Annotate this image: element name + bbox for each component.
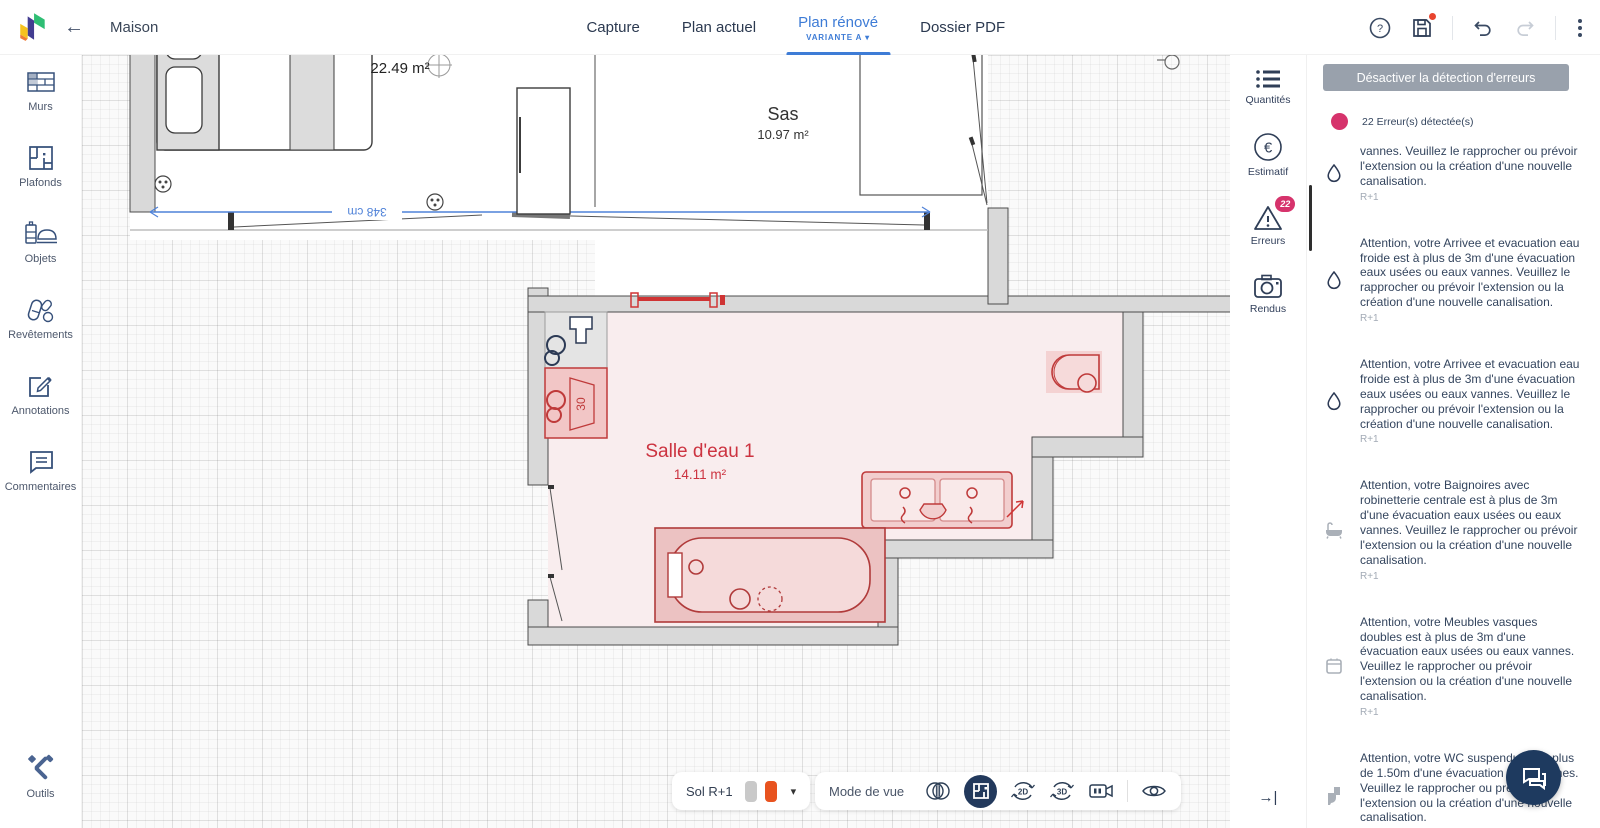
top-bar: ← Maison Capture Plan actuel Plan rénové… (0, 0, 1600, 55)
view-mode-label: Mode de vue (829, 784, 904, 799)
eye-visibility-icon[interactable] (1141, 778, 1167, 804)
divider (1555, 16, 1556, 40)
floor-selector-label: Sol R+1 (686, 784, 733, 799)
chevron-down-icon: ▾ (865, 33, 870, 42)
wall-bricks-icon (26, 68, 56, 96)
wc-suspendu[interactable] (1046, 351, 1102, 393)
water-drop-icon (1323, 391, 1345, 411)
unsaved-indicator (1429, 13, 1436, 20)
euro-icon: € (1253, 132, 1283, 162)
plan-2d-view-button[interactable] (964, 775, 997, 808)
tab-dossier-pdf[interactable]: Dossier PDF (920, 0, 1005, 55)
save-icon[interactable] (1410, 16, 1434, 40)
svg-text:348 cm: 348 cm (347, 205, 386, 219)
sidebar-item-objets[interactable]: Objets (24, 220, 58, 265)
bed-furniture-icon (24, 220, 58, 248)
chat-button[interactable] (1506, 750, 1561, 805)
error-item[interactable]: Attention, votre Baignoires avec robinet… (1323, 478, 1590, 581)
vanity-cabinet-icon (1323, 657, 1345, 675)
error-item[interactable]: Attention, votre Arrivee et evacuation e… (1323, 236, 1590, 324)
svg-text:2D: 2D (1018, 788, 1028, 797)
video-camera-icon[interactable] (1088, 778, 1114, 804)
double-vanity[interactable] (862, 472, 1023, 528)
wardrobe[interactable] (517, 88, 570, 214)
overlay-compare-icon[interactable] (925, 778, 951, 804)
chevron-down-icon: ▾ (791, 785, 797, 798)
back-arrow-icon[interactable]: ← (64, 16, 84, 39)
svg-text:30: 30 (574, 397, 588, 411)
redo-icon[interactable] (1513, 16, 1537, 40)
tab-plan-renove[interactable]: Plan rénové VARIANTE A▾ (798, 0, 878, 55)
left-toolbar: Murs Plafonds Objets Revêtements (0, 55, 82, 828)
sidebar-item-murs[interactable]: Murs (26, 68, 56, 113)
sidebar-item-outils[interactable]: Outils (26, 753, 56, 800)
disable-error-detection-button[interactable]: Désactiver la détection d'erreurs (1323, 64, 1569, 91)
sidebar-item-revetements[interactable]: Revêtements (8, 296, 73, 341)
svg-text:?: ? (1377, 23, 1383, 35)
chat-bubbles-icon (1520, 765, 1548, 791)
svg-text:3D: 3D (1057, 788, 1067, 797)
variant-selector[interactable]: VARIANTE A▾ (806, 33, 870, 42)
comment-bubble-icon (26, 448, 56, 476)
error-list: vannes. Veuillez le rapprocher ou prévoi… (1307, 144, 1600, 828)
sidebar-item-plafonds[interactable]: Plafonds (19, 144, 62, 189)
washing-machine[interactable]: 30 (545, 368, 607, 438)
help-icon[interactable]: ? (1368, 16, 1392, 40)
undo-icon[interactable] (1471, 16, 1495, 40)
svg-text:14.11 m²: 14.11 m² (674, 467, 727, 482)
svg-text:€: € (1264, 140, 1273, 157)
svg-text:10.97 m²: 10.97 m² (757, 127, 809, 142)
floorplan-icon (27, 144, 55, 172)
divider (1127, 780, 1128, 802)
rail-item-estimatif[interactable]: € Estimatif (1248, 132, 1288, 178)
floor-chip-gray[interactable] (745, 781, 757, 802)
list-icon (1255, 68, 1281, 90)
plan-canvas[interactable]: 348 cm 22.49 m² (82, 55, 1230, 828)
camera-icon (1253, 273, 1283, 299)
rotate-3d-icon[interactable]: 3D (1049, 778, 1075, 804)
error-count-badge: 22 (1275, 196, 1295, 212)
tab-capture[interactable]: Capture (586, 0, 639, 55)
errors-panel: Désactiver la détection d'erreurs 22 Err… (1306, 55, 1600, 828)
svg-text:Salle d'eau 1: Salle d'eau 1 (645, 441, 754, 462)
app-logo-icon (16, 10, 50, 44)
project-title: Maison (110, 19, 158, 36)
annotate-pencil-icon (26, 372, 54, 400)
error-item[interactable]: vannes. Veuillez le rapprocher ou prévoi… (1323, 144, 1590, 203)
divider (1452, 16, 1453, 40)
svg-text:Sas: Sas (767, 104, 798, 124)
floor-selector[interactable]: Sol R+1 ▾ (672, 772, 810, 810)
error-dot-icon (1331, 113, 1348, 130)
right-rail: Quantités € Estimatif 22 Erreurs Rendus … (1230, 55, 1306, 828)
water-drop-icon (1323, 270, 1345, 290)
error-item[interactable]: Attention, votre Arrivee et evacuation e… (1323, 357, 1590, 445)
error-summary: 22 Erreur(s) détectée(s) (1331, 113, 1600, 130)
bed[interactable] (157, 55, 372, 150)
more-menu-icon[interactable] (1574, 19, 1586, 37)
floor-chip-orange[interactable] (765, 781, 777, 802)
sidebar-item-annotations[interactable]: Annotations (11, 372, 69, 417)
sidebar-item-commentaires[interactable]: Commentaires (5, 448, 77, 493)
tab-plan-actuel[interactable]: Plan actuel (682, 0, 756, 55)
rail-item-erreurs[interactable]: 22 Erreurs (1251, 204, 1285, 247)
toilet-icon (1323, 785, 1345, 805)
rotate-2d-icon[interactable]: 2D (1010, 778, 1036, 804)
coatings-icon (26, 296, 56, 324)
view-mode-bar: Mode de vue 2D 3D (815, 772, 1181, 810)
wc-corner[interactable] (545, 312, 607, 368)
tools-icon (26, 753, 56, 783)
bathtub[interactable] (655, 528, 885, 622)
main-tabs: Capture Plan actuel Plan rénové VARIANTE… (586, 0, 1005, 55)
scrollbar-thumb[interactable] (1309, 185, 1312, 251)
svg-text:22.49 m²: 22.49 m² (370, 60, 429, 77)
bathtub-icon (1323, 521, 1345, 539)
rail-item-rendus[interactable]: Rendus (1250, 273, 1286, 315)
collapse-panel-icon[interactable]: →| (1259, 789, 1278, 806)
error-item[interactable]: Attention, votre Meubles vasques doubles… (1323, 615, 1590, 718)
water-drop-icon (1323, 163, 1345, 183)
active-tab-underline (786, 52, 890, 55)
rail-item-quantites[interactable]: Quantités (1246, 68, 1291, 106)
